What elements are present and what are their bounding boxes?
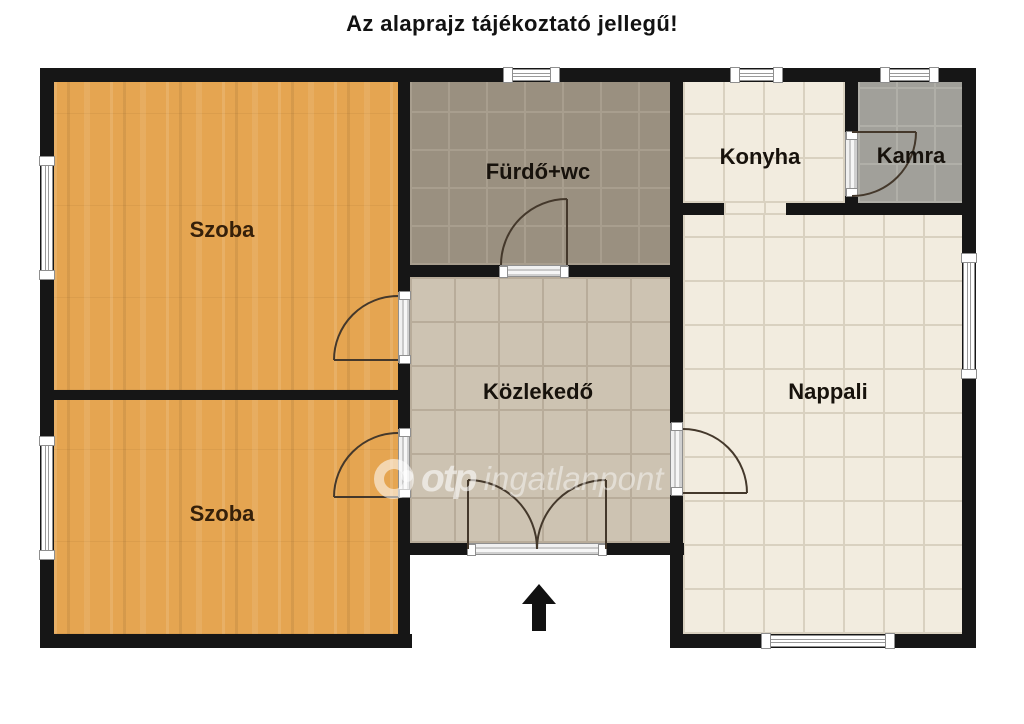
label-furdo: Fürdő+wc: [486, 159, 591, 185]
watermark-suffix: ingatlanpont: [484, 459, 664, 499]
label-kozlekedo: Közlekedő: [483, 379, 593, 405]
door-swing-szoba-upper: [334, 296, 398, 360]
plan-overlay: [0, 0, 1024, 724]
watermark-brand: otp: [421, 459, 476, 499]
floor-plan: Az alaprajz tájékoztató jellegű!: [0, 0, 1024, 724]
otp-logo-icon: [374, 459, 414, 499]
label-szoba-upper: Szoba: [190, 217, 255, 243]
door-swing-furdo: [501, 199, 567, 265]
door-swing-nappali: [683, 429, 747, 493]
north-arrow-icon: [522, 584, 556, 631]
label-kamra: Kamra: [877, 143, 945, 169]
watermark: otp ingatlanpont: [374, 459, 663, 499]
label-konyha: Konyha: [720, 144, 801, 170]
label-nappali: Nappali: [788, 379, 867, 405]
label-szoba-lower: Szoba: [190, 501, 255, 527]
